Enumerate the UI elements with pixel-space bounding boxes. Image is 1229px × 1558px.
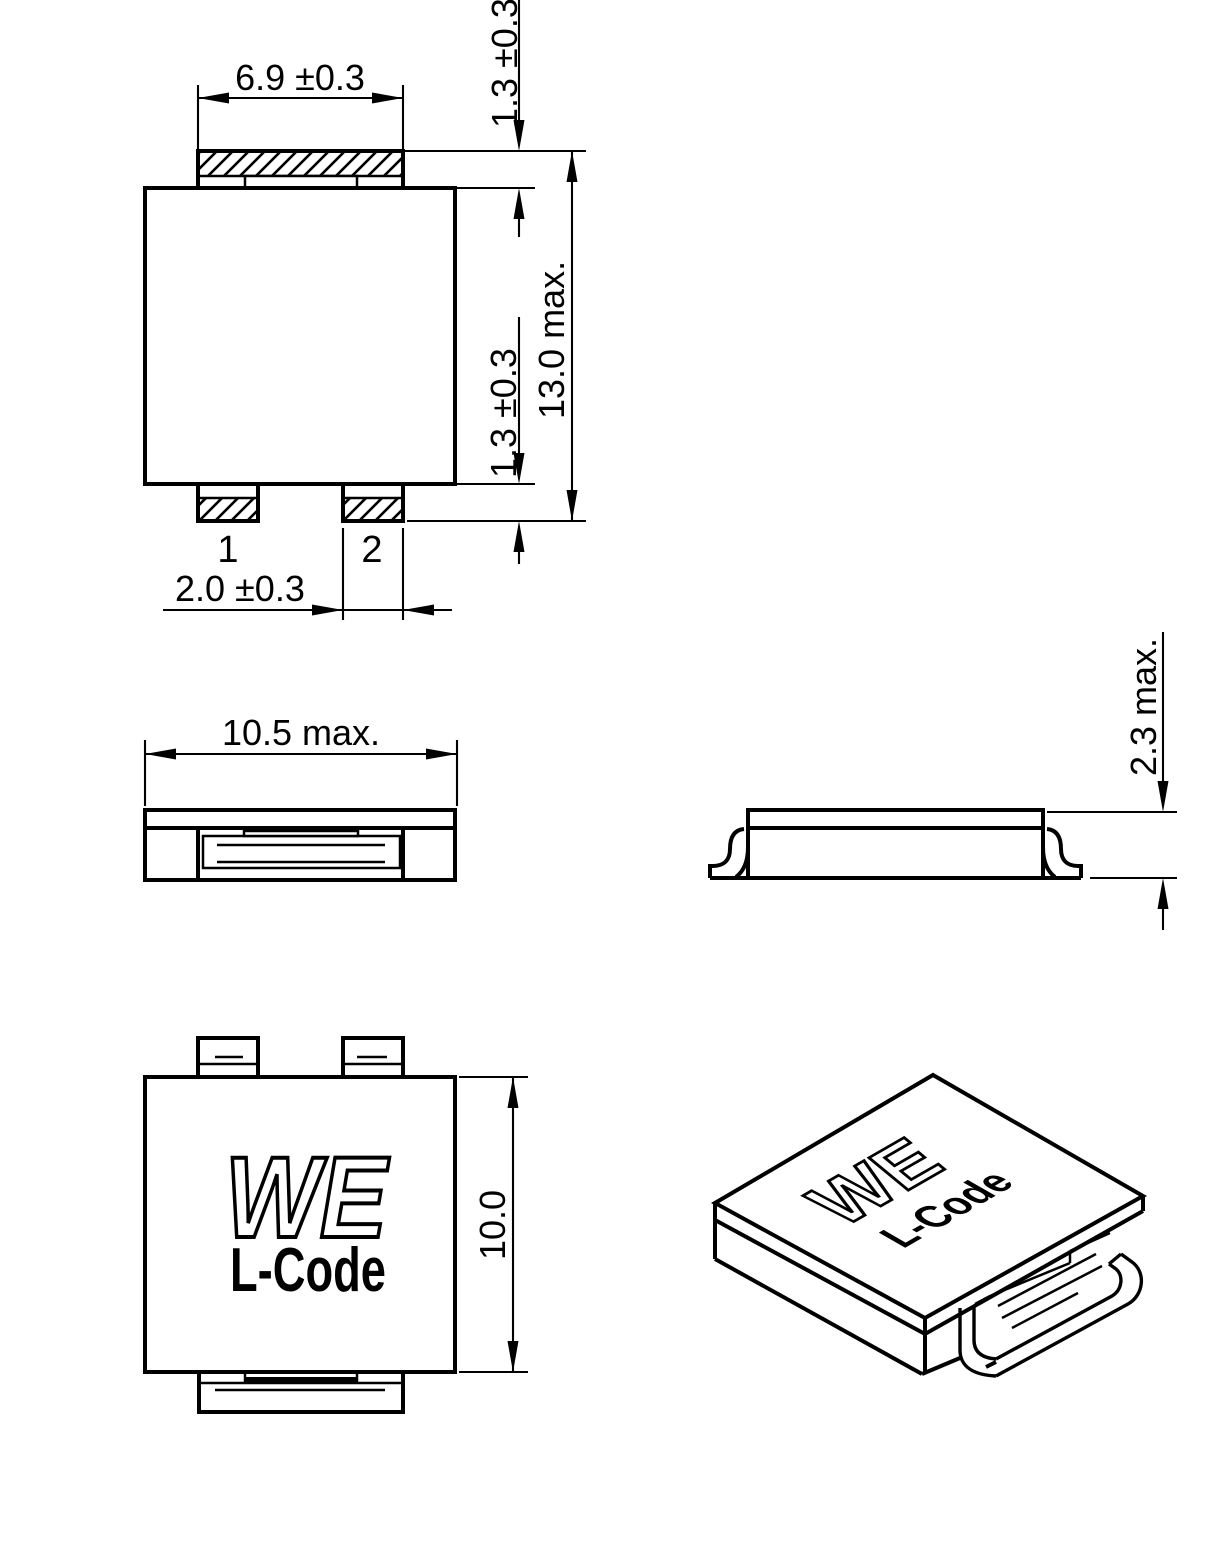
dim-overall-width-label: 10.5 max. [222, 712, 380, 753]
left-gullwing-outer [710, 829, 744, 878]
arrowhead-up [567, 151, 578, 182]
arrowhead-down [1158, 781, 1169, 812]
arrowhead-right [426, 749, 457, 760]
dim-top-terminal-label: 1.3 ±0.3 [484, 0, 525, 128]
lcode-marking: L-Code [230, 1236, 386, 1305]
pin1-pad-hatch [200, 498, 256, 519]
front-view: 10.5 max. [145, 712, 457, 880]
arrowhead-up [514, 521, 525, 552]
dim-overall-height: 2.3 max. [1047, 632, 1177, 930]
top-plate [748, 810, 1043, 828]
dim-pad-width-label: 6.9 ±0.3 [235, 57, 365, 98]
pin2-label: 2 [361, 529, 382, 571]
arrowhead-left [198, 93, 229, 104]
dim-body-length: 10.0 [459, 1077, 528, 1372]
side-profile-view: 2.3 max. [710, 632, 1177, 930]
dimension-drawing-canvas: 6.9 ±0.3 1.3 ±0.3 1.3 ±0.3 13 [0, 0, 1229, 1558]
bottom-view: WE L-Code 10.0 [145, 1038, 528, 1412]
arrowhead-right [312, 605, 343, 616]
dim-bottom-terminal-label: 1.3 ±0.3 [483, 348, 524, 478]
pin1-label: 1 [217, 529, 238, 571]
arrowhead-up [508, 1077, 519, 1108]
right-gullwing-outer [1047, 829, 1081, 878]
arrowhead-left [145, 749, 176, 760]
arrowhead-up [1158, 878, 1169, 909]
arrowhead-down [567, 490, 578, 521]
arrowhead-left [403, 605, 434, 616]
dim-body-length-label: 10.0 [472, 1190, 513, 1260]
top-view: 6.9 ±0.3 1.3 ±0.3 1.3 ±0.3 13 [145, 0, 586, 620]
dim-pad-width: 6.9 ±0.3 [198, 57, 403, 150]
arrowhead-down [508, 1341, 519, 1372]
dim-terminal-width: 2.0 ±0.3 [163, 528, 452, 620]
dim-terminal-width-label: 2.0 ±0.3 [175, 568, 305, 609]
terminal-hook-edge [1109, 1254, 1121, 1264]
dim-overall-height-label: 2.3 max. [1123, 638, 1164, 776]
winding-step [244, 831, 358, 836]
arrowhead-right [372, 93, 403, 104]
pin2-pad-hatch [345, 498, 401, 519]
arrowhead-up [514, 188, 525, 219]
terminal-rib-inner [974, 1305, 996, 1359]
dim-overall-length: 13.0 max. [531, 151, 578, 521]
isometric-view: WE L-Code [715, 1075, 1143, 1376]
technical-drawing-page: 6.9 ±0.3 1.3 ±0.3 1.3 ±0.3 13 [0, 0, 1229, 1558]
top-view-body [145, 188, 455, 484]
bottom-tab-black-bar [245, 1377, 357, 1384]
dim-overall-width: 10.5 max. [145, 712, 457, 806]
top-terminal-hatch [200, 153, 401, 176]
dim-overall-length-label: 13.0 max. [531, 261, 572, 419]
